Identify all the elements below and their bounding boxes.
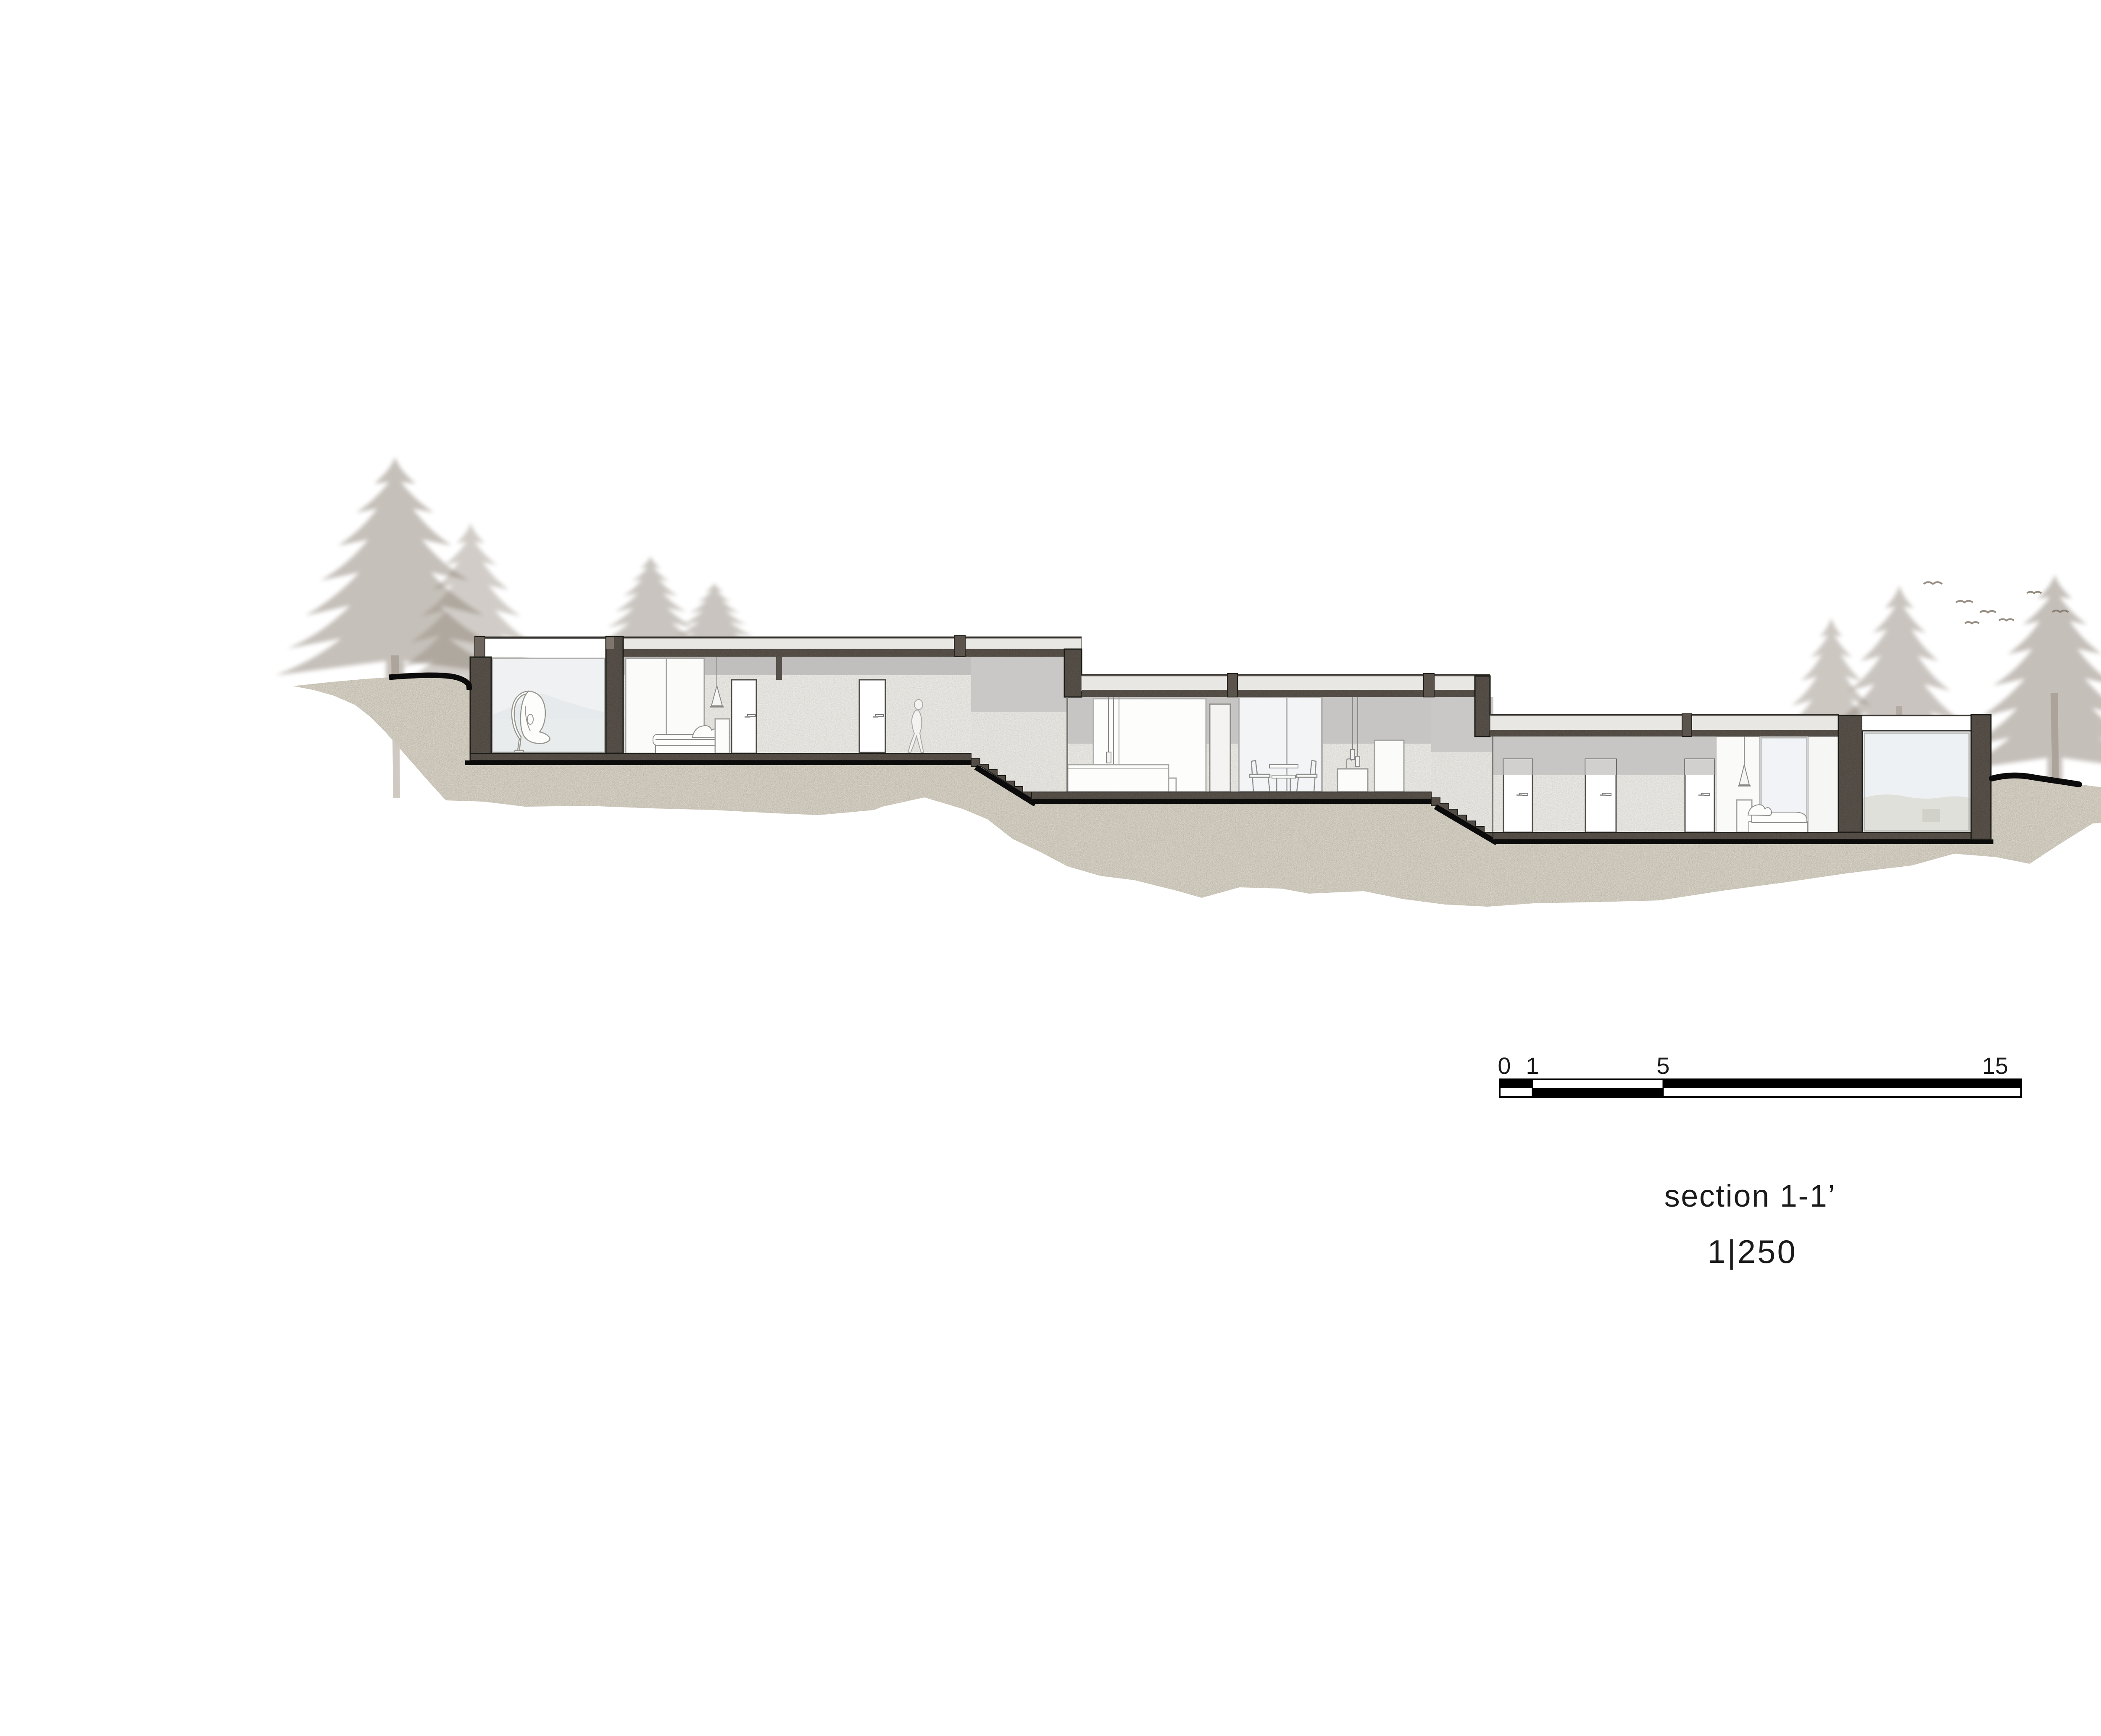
svg-text:5: 5 [1656,1052,1669,1079]
svg-text:section 1-1’: section 1-1’ [1664,1178,1836,1213]
svg-text:0: 0 [1498,1052,1511,1079]
svg-text:1: 1 [1526,1052,1539,1079]
svg-text:15: 15 [1982,1052,2008,1079]
svg-text:1|250: 1|250 [1707,1233,1797,1270]
